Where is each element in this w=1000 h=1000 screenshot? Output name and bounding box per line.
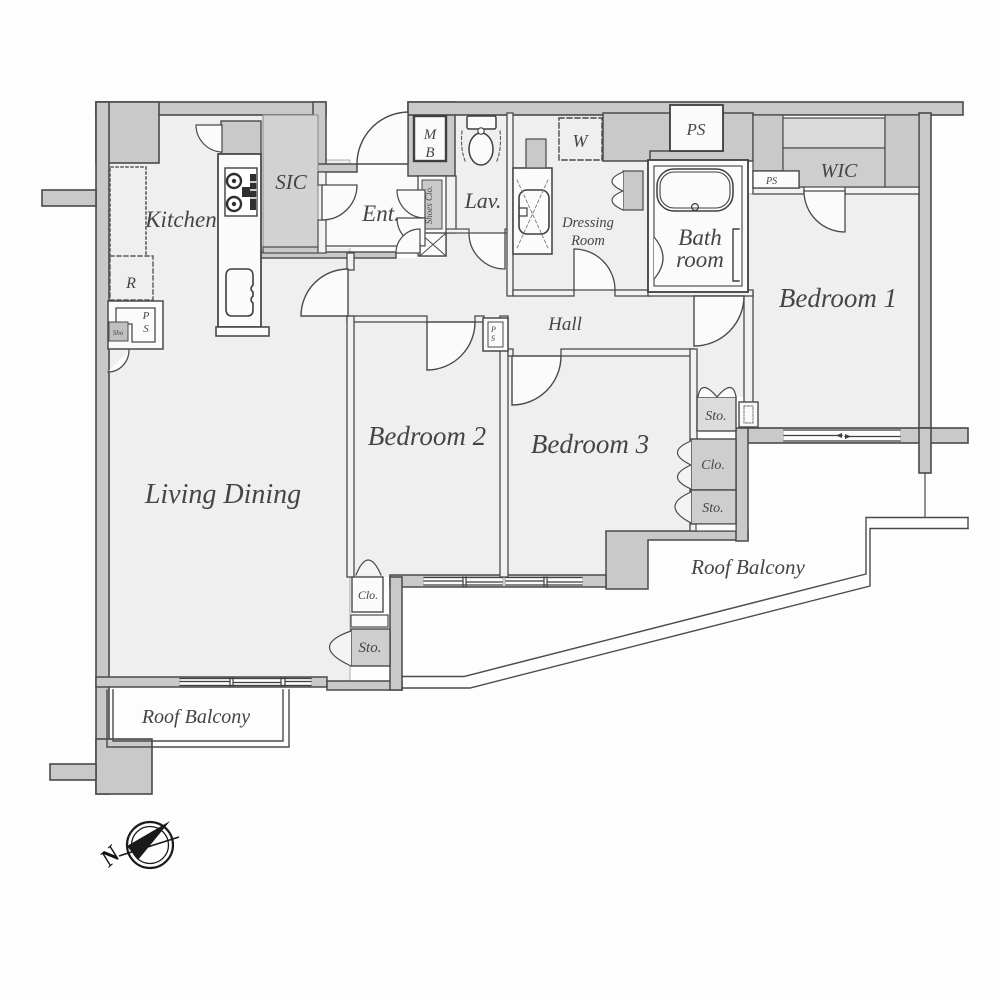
svg-text:Sto.: Sto. bbox=[705, 409, 726, 424]
svg-text:Room: Room bbox=[570, 233, 605, 249]
svg-text:Bedroom 1: Bedroom 1 bbox=[779, 283, 897, 313]
svg-text:Roof Balcony: Roof Balcony bbox=[690, 555, 805, 579]
svg-text:Clo.: Clo. bbox=[701, 458, 725, 473]
svg-text:Shoes Clo.: Shoes Clo. bbox=[424, 186, 434, 225]
svg-text:Bedroom 3: Bedroom 3 bbox=[531, 429, 649, 459]
svg-text:PS: PS bbox=[686, 120, 706, 139]
svg-text:W: W bbox=[573, 131, 590, 151]
svg-text:room: room bbox=[676, 247, 724, 272]
svg-text:S: S bbox=[143, 323, 149, 335]
svg-text:Bedroom 2: Bedroom 2 bbox=[368, 421, 486, 451]
svg-text:R: R bbox=[125, 275, 136, 292]
svg-text:Hall: Hall bbox=[547, 314, 582, 335]
svg-text:Dressing: Dressing bbox=[561, 215, 614, 231]
svg-text:S: S bbox=[491, 334, 495, 343]
svg-text:B: B bbox=[425, 145, 434, 161]
svg-text:PS: PS bbox=[765, 176, 777, 187]
svg-text:Roof Balcony: Roof Balcony bbox=[141, 706, 250, 728]
svg-text:M: M bbox=[423, 127, 438, 143]
svg-text:P: P bbox=[490, 325, 496, 334]
svg-text:Lav.: Lav. bbox=[464, 188, 502, 213]
svg-text:Sto.: Sto. bbox=[359, 640, 382, 656]
svg-text:Living Dining: Living Dining bbox=[144, 479, 301, 510]
svg-text:WIC: WIC bbox=[821, 160, 858, 182]
svg-text:Sto.: Sto. bbox=[702, 501, 723, 516]
svg-text:P: P bbox=[142, 310, 150, 322]
svg-text:Kitchen: Kitchen bbox=[144, 207, 217, 232]
svg-text:Ent.: Ent. bbox=[361, 201, 400, 226]
svg-text:SIC: SIC bbox=[275, 170, 307, 194]
svg-text:Sho: Sho bbox=[113, 329, 124, 337]
svg-text:Clo.: Clo. bbox=[358, 588, 378, 602]
